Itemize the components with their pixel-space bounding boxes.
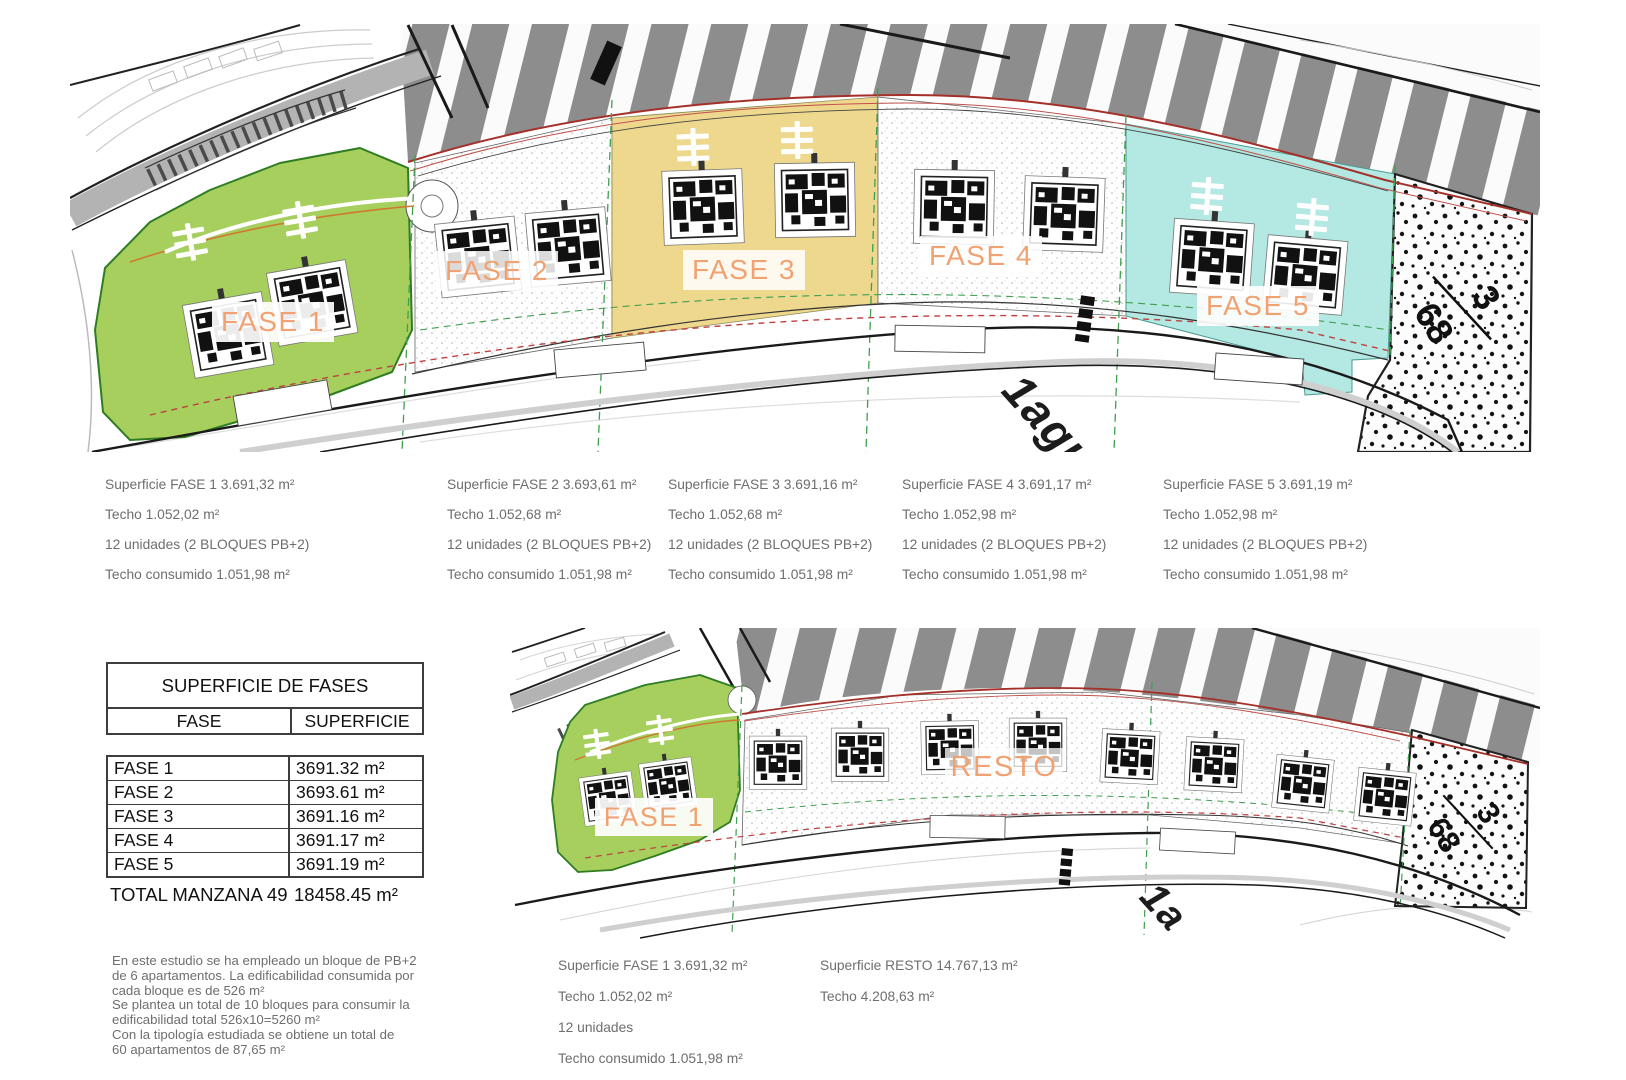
unidades-line: 12 unidades (2 BLOQUES PB+2) [1163,530,1367,560]
fase3-info: Superficie FASE 3 3.691,16 m² Techo 1.05… [668,470,872,590]
fase1-label: FASE 1 [221,306,325,337]
fase4-label: FASE 4 [929,240,1033,271]
superficie-line: Superficie FASE 1 3.691,32 m² [558,950,747,981]
unidades-line: 12 unidades [558,1012,747,1043]
superficie-line: Superficie RESTO 14.767,13 m² [820,950,1018,981]
consumido-line: Techo consumido 1.051,98 m² [558,1043,747,1074]
parcel-3-68 [1395,730,1528,908]
table-row: FASE 1 3691.32 m² [108,757,422,780]
fase3-label: FASE 3 [692,254,796,285]
superficie-line: Superficie FASE 4 3.691,17 m² [902,470,1106,500]
table-row: FASE 5 3691.19 m² [108,852,422,876]
techo-line: Techo 4.208,63 m² [820,981,1018,1012]
superficie-table: SUPERFICIE DE FASES FASE SUPERFICIE FASE… [106,662,424,907]
fase2-info: Superficie FASE 2 3.693,61 m² Techo 1.05… [447,470,651,590]
techo-line: Techo 1.052,02 m² [558,981,747,1012]
resto-label: RESTO [951,751,1058,783]
table-row: FASE 2 3693.61 m² [108,780,422,804]
techo-line: Techo 1.052,68 m² [668,500,872,530]
superficie-line: Superficie FASE 5 3.691,19 m² [1163,470,1367,500]
superficie-line: Superficie FASE 2 3.693,61 m² [447,470,651,500]
study-notes: En este estudio se ha empleado un bloque… [112,954,452,1058]
unidades-line: 12 unidades (2 BLOQUES PB+2) [105,530,309,560]
consumido-line: Techo consumido 1.051,98 m² [447,560,651,590]
col-header-fase: FASE [108,709,292,733]
consumido-line: Techo consumido 1.051,98 m² [668,560,872,590]
fase1-label: FASE 1 [604,802,705,832]
consumido-line: Techo consumido 1.051,98 m² [105,560,309,590]
table-row: FASE 4 3691.17 m² [108,828,422,852]
col-header-superficie: SUPERFICIE [292,709,422,733]
superficie-line: Superficie FASE 1 3.691,32 m² [105,470,309,500]
consumido-line: Techo consumido 1.051,98 m² [1163,560,1367,590]
fase2-label: FASE 2 [445,255,549,286]
superficie-line: Superficie FASE 3 3.691,16 m² [668,470,872,500]
unidades-line: 12 unidades (2 BLOQUES PB+2) [902,530,1106,560]
bottom-resto-info: Superficie RESTO 14.767,13 m² Techo 4.20… [820,950,1018,1012]
techo-line: Techo 1.052,02 m² [105,500,309,530]
unidades-line: 12 unidades (2 BLOQUES PB+2) [668,530,872,560]
table-row: FASE 3 3691.16 m² [108,804,422,828]
techo-line: Techo 1.052,98 m² [902,500,1106,530]
bottom-fase1-info: Superficie FASE 1 3.691,32 m² Techo 1.05… [558,950,747,1074]
techo-line: Techo 1.052,68 m² [447,500,651,530]
unidades-line: 12 unidades (2 BLOQUES PB+2) [447,530,651,560]
fase4-info: Superficie FASE 4 3.691,17 m² Techo 1.05… [902,470,1106,590]
fase5-label: FASE 5 [1206,290,1310,321]
consumido-line: Techo consumido 1.051,98 m² [902,560,1106,590]
table-title: SUPERFICIE DE FASES [108,664,422,707]
fase5-info: Superficie FASE 5 3.691,19 m² Techo 1.05… [1163,470,1367,590]
site-plan-top: 1agu FASE 1 FASE 2 FASE 3 FASE 4 FASE 5 [70,24,1540,452]
table-total-row: TOTAL MANZANA 49 18458.45 m² [106,883,424,907]
fase1-info: Superficie FASE 1 3.691,32 m² Techo 1.05… [105,470,309,590]
plan-document-page: { "colors": { "fase1_green": "#a6cf5e", … [0,0,1626,1080]
techo-line: Techo 1.052,98 m² [1163,500,1367,530]
site-plan-bottom: 1a FASE 1 RESTO [510,628,1540,940]
